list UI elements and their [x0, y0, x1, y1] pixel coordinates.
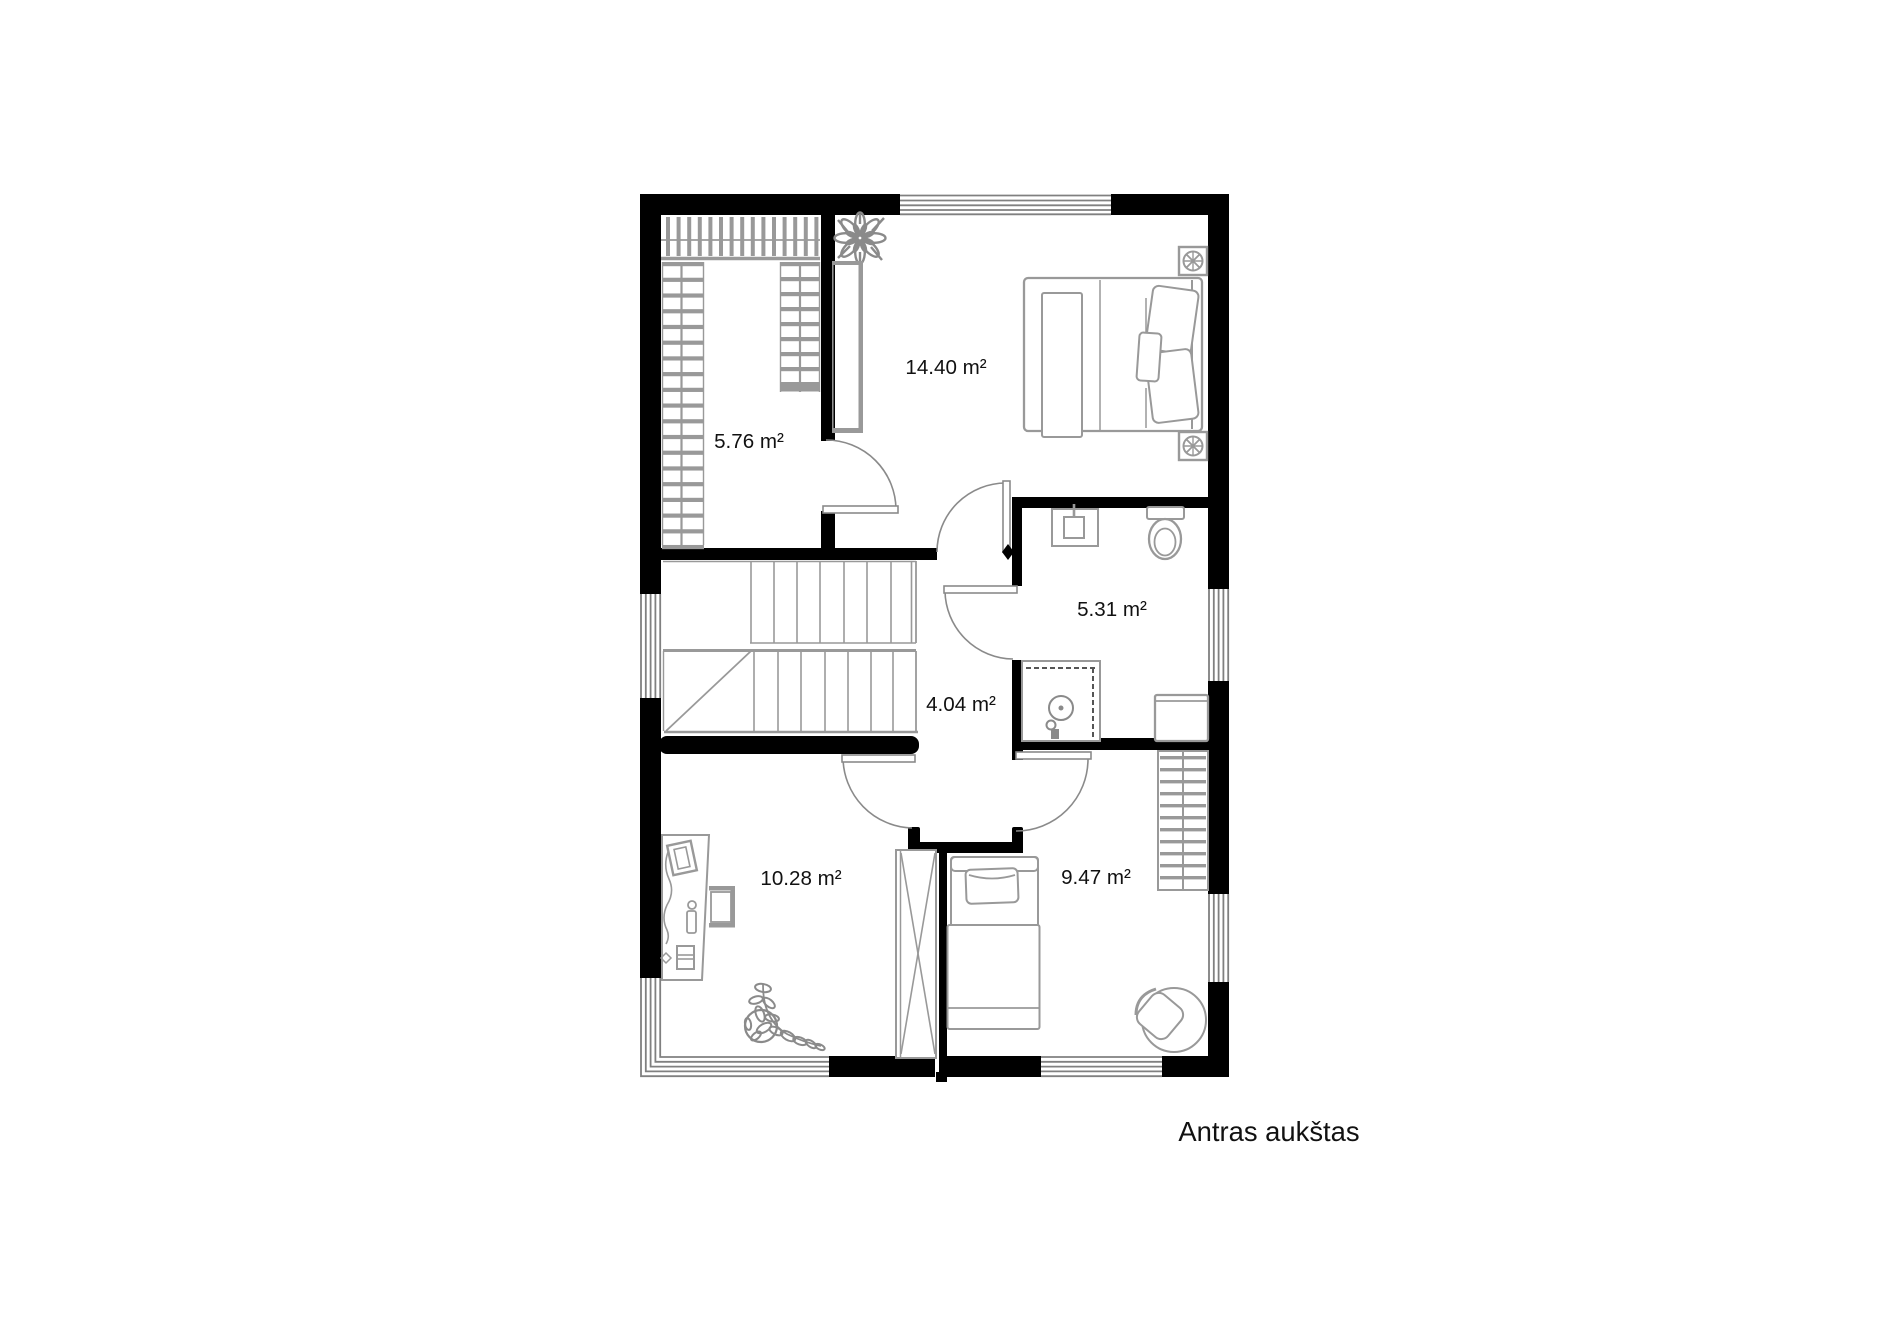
svg-text:4.04 m²: 4.04 m² — [926, 693, 996, 716]
svg-text:10.28 m²: 10.28 m² — [760, 867, 841, 890]
svg-text:14.40 m²: 14.40 m² — [905, 356, 986, 379]
svg-text:5.76 m²: 5.76 m² — [714, 430, 784, 453]
svg-text:9.47 m²: 9.47 m² — [1061, 866, 1131, 889]
svg-text:Antras aukštas: Antras aukštas — [1178, 1116, 1359, 1147]
svg-text:5.31 m²: 5.31 m² — [1077, 598, 1147, 621]
